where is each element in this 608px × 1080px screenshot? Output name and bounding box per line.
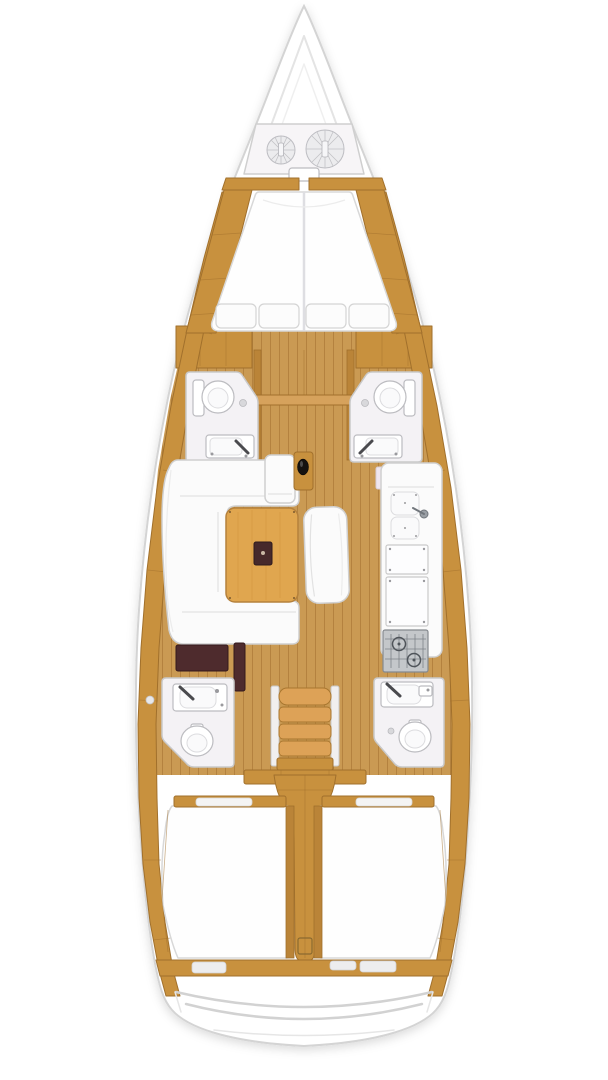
pillow	[259, 304, 299, 328]
pillow	[216, 304, 256, 328]
forward-seat	[265, 455, 295, 503]
worktop-locker-1	[386, 545, 428, 574]
island-bench	[303, 506, 349, 603]
deck-pad	[330, 961, 356, 970]
forward-head-starboard	[350, 372, 422, 462]
anchor-locker	[244, 124, 364, 181]
mast	[294, 452, 313, 490]
stove-icon	[383, 630, 428, 672]
sink-icon	[354, 435, 402, 458]
deck-pad	[192, 962, 226, 973]
step-landing	[277, 758, 333, 770]
shower-drain-icon	[362, 400, 369, 407]
forward-head-port	[186, 372, 258, 462]
worktop-locker-2	[386, 577, 428, 626]
galley	[376, 463, 442, 672]
deck-pad	[360, 961, 396, 972]
step	[279, 724, 331, 739]
pillow	[306, 304, 346, 328]
berth-inner-rail	[314, 806, 322, 958]
sink-icon	[206, 435, 254, 458]
shower-drain-icon	[388, 728, 394, 734]
corridor-beam	[256, 395, 352, 405]
aft-cabin-starboard	[314, 796, 446, 958]
berth-inner-rail	[286, 806, 294, 958]
pillow	[349, 304, 389, 328]
v-berth-cabin	[186, 190, 422, 333]
boat-plan-svg	[0, 0, 608, 1080]
rope-coil-large	[306, 130, 344, 168]
porthole-icon	[146, 696, 154, 704]
step	[279, 741, 331, 756]
step	[279, 707, 331, 722]
mast-post-icon	[298, 459, 309, 475]
step	[279, 688, 331, 705]
sink-icon	[381, 682, 433, 707]
shower-drain-icon	[240, 400, 247, 407]
aft-cabin-port	[162, 796, 294, 958]
sink-icon	[173, 684, 227, 711]
stern-bulkhead	[156, 960, 452, 976]
saloon-table	[226, 508, 298, 602]
boat-plan-image	[0, 0, 608, 1080]
rope-coil-small	[267, 136, 295, 164]
